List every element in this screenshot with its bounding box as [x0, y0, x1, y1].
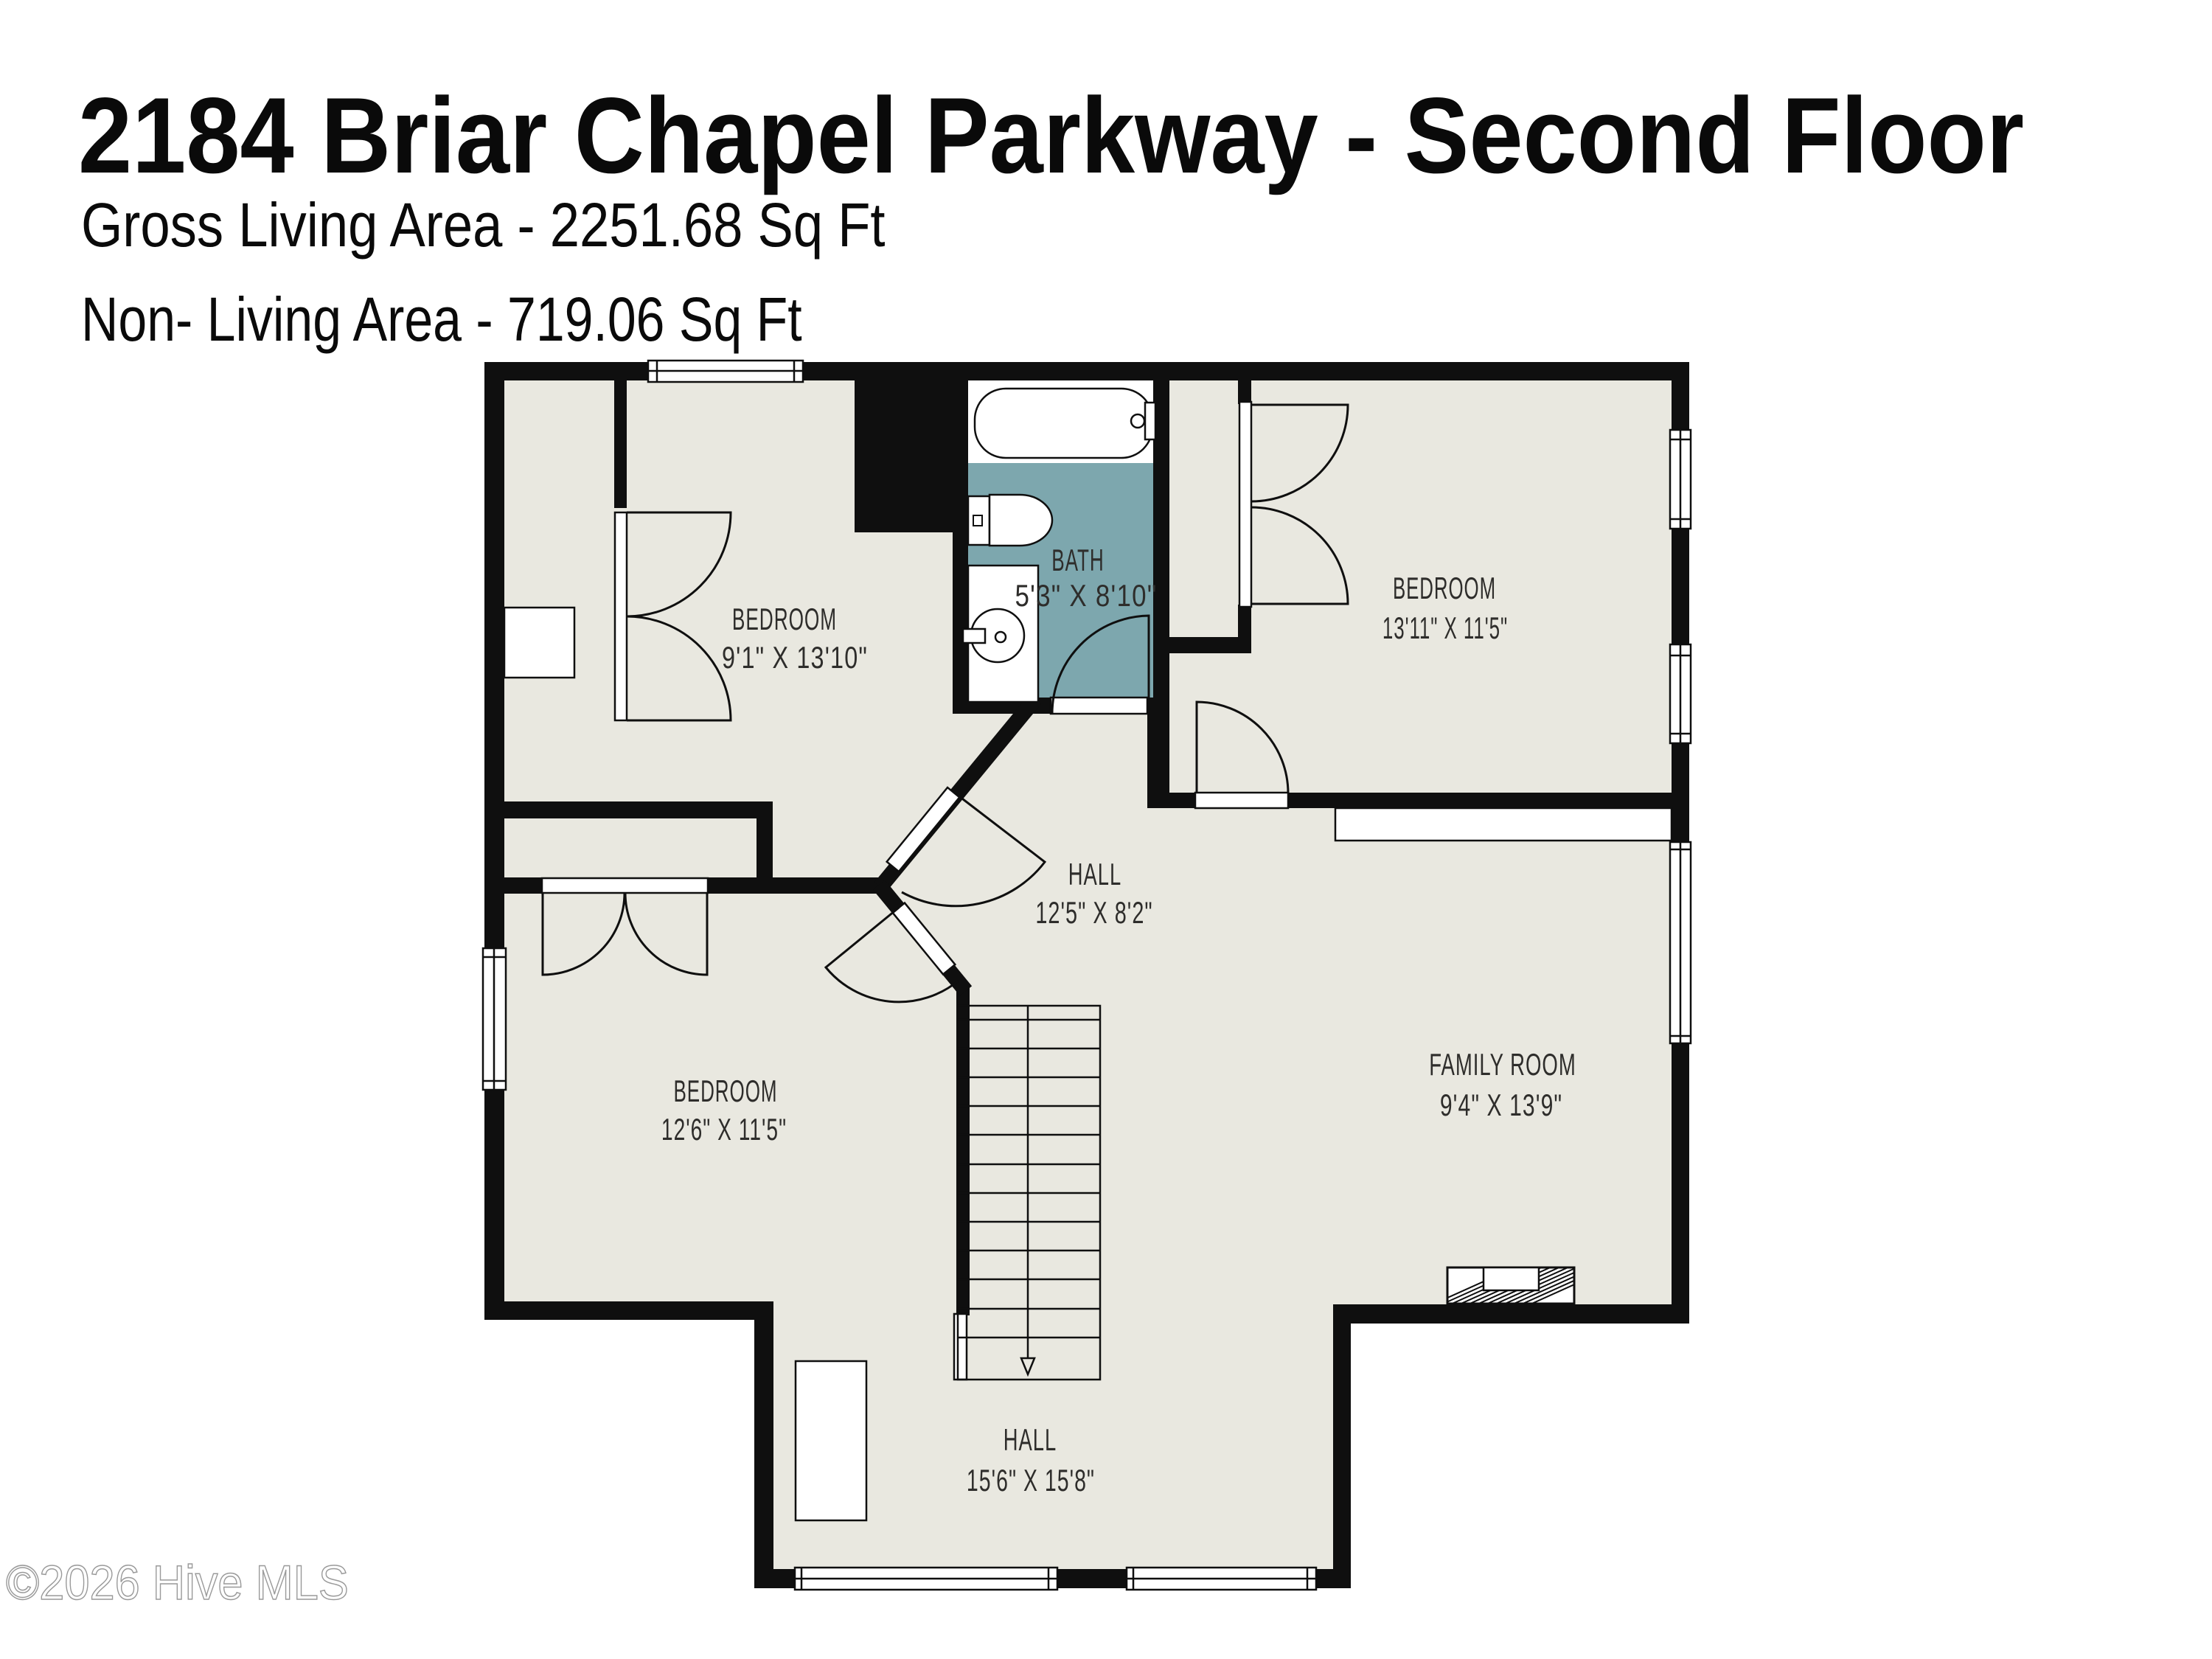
- svg-text:2184 Briar Chapel Parkway - Se: 2184 Briar Chapel Parkway - Second Floor: [78, 76, 2024, 196]
- svg-text:HALL: HALL: [1004, 1422, 1057, 1457]
- svg-text:BATH: BATH: [1051, 543, 1104, 578]
- svg-text:9'4" X 13'9": 9'4" X 13'9": [1440, 1088, 1562, 1122]
- svg-text:Gross Living Area - 2251.68 Sq: Gross Living Area - 2251.68 Sq Ft: [81, 190, 886, 260]
- svg-text:13'11" X 11'5": 13'11" X 11'5": [1382, 611, 1508, 646]
- svg-text:BEDROOM: BEDROOM: [1393, 571, 1496, 606]
- svg-text:15'6" X 15'8": 15'6" X 15'8": [967, 1464, 1095, 1498]
- svg-text:5'3" X 8'10": 5'3" X 8'10": [1015, 579, 1158, 613]
- svg-text:FAMILY ROOM: FAMILY ROOM: [1429, 1047, 1576, 1082]
- svg-text:12'5" X 8'2": 12'5" X 8'2": [1035, 895, 1152, 931]
- svg-text:©2026 Hive MLS: ©2026 Hive MLS: [6, 1555, 349, 1610]
- svg-text:9'1" X 13'10": 9'1" X 13'10": [722, 640, 868, 675]
- svg-text:BEDROOM: BEDROOM: [673, 1074, 777, 1109]
- svg-text:12'6" X 11'5": 12'6" X 11'5": [661, 1112, 787, 1147]
- svg-text:HALL: HALL: [1068, 857, 1121, 891]
- svg-text:Non- Living Area - 719.06 Sq F: Non- Living Area - 719.06 Sq Ft: [81, 285, 802, 355]
- svg-text:BEDROOM: BEDROOM: [732, 602, 837, 637]
